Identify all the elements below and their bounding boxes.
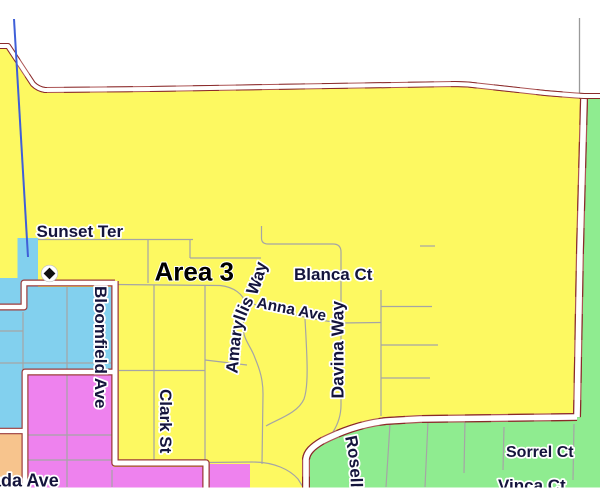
svg-text:Blanca Ct: Blanca Ct: [294, 265, 373, 284]
svg-text:Clark St: Clark St: [156, 389, 175, 454]
svg-text:Sorrel Ct: Sorrel Ct: [506, 444, 574, 461]
svg-text:Davina Way: Davina Way: [328, 301, 348, 399]
svg-text:Area 3: Area 3: [155, 257, 235, 287]
svg-text:Bloomfield Ave: Bloomfield Ave: [91, 286, 110, 408]
svg-text:Sunset Ter: Sunset Ter: [37, 222, 124, 241]
